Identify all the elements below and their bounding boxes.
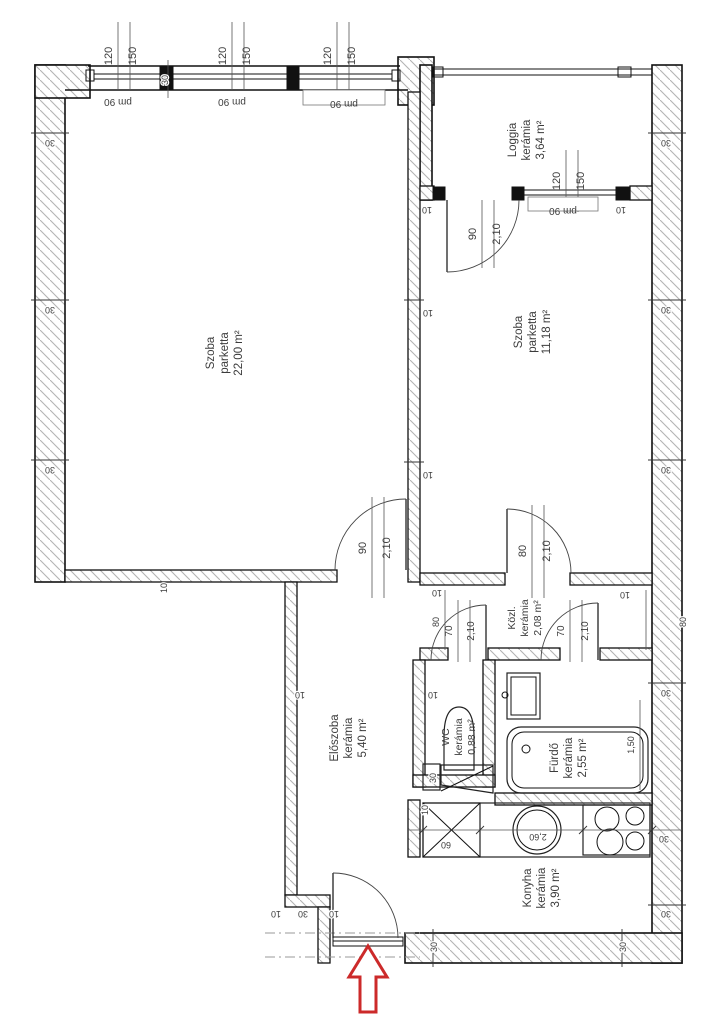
wc-door-width: 70 [444, 625, 455, 637]
window1-width: 120 [103, 47, 115, 65]
room-name: Közl. [506, 606, 518, 629]
loggia-window-parapet: pm 90 [549, 205, 577, 216]
room-material: kerámia [519, 599, 531, 637]
room-label-kozl: Közl. kerámia 2,08 m² [506, 599, 544, 637]
unit-width-label: 60 [441, 840, 451, 850]
window1-height: 150 [127, 47, 139, 65]
wall-label-10: 10 [432, 588, 442, 598]
wall-label-10: 10 [616, 205, 626, 215]
room-label-wc: WC kerámia 0,88 m² [440, 718, 478, 756]
szoba-small-door-height: 2,10 [541, 540, 553, 561]
furdo-door-height: 2,10 [580, 621, 591, 641]
room-name: Loggia [507, 122, 519, 157]
counter-length-label: 2,60 [529, 832, 547, 842]
wall-label-10: 10 [159, 583, 169, 593]
loggia-window-height: 150 [575, 172, 587, 190]
room-material: kerámia [536, 867, 548, 909]
entrance-arrow [349, 946, 387, 1012]
room-name: Fürdő [549, 743, 561, 773]
loggia-door-height: 2,10 [491, 223, 503, 244]
window3-parapet: pm 90 [330, 98, 358, 109]
room-name: WC [440, 728, 452, 746]
wall-label-10: 10 [422, 205, 432, 215]
entrance-arrow-shape [349, 946, 387, 1012]
top-window-band [65, 66, 408, 90]
wall-label-10: 10 [420, 805, 430, 815]
room-name: Szoba [513, 315, 525, 348]
wall-label-10: 10 [620, 590, 630, 600]
room-area: 2,55 m² [577, 738, 589, 777]
room-material: kerámia [563, 737, 575, 779]
room-name: Előszoba [329, 714, 341, 762]
room-material: kerámia [521, 119, 533, 161]
wall-label-30: 30 [661, 688, 671, 698]
window1-parapet: pm 90 [104, 96, 132, 107]
interior-walls [65, 92, 652, 963]
wall-label-30: 30 [45, 465, 55, 475]
wall-label-10: 10 [423, 470, 433, 480]
window2-parapet: pm 90 [218, 96, 246, 107]
room-material: parketta [219, 332, 231, 374]
wall-label-30: 30 [45, 305, 55, 315]
room-area: 3,64 m² [535, 120, 547, 159]
floor-plan-canvas: 120 150 120 150 120 150 pm 90 pm 90 pm 9… [0, 0, 720, 1024]
wall-label-30: 30 [661, 138, 671, 148]
wall-label-10: 10 [295, 690, 305, 700]
door-szoba-small [507, 509, 571, 573]
window2-width: 120 [217, 47, 229, 65]
loggia-railing [433, 67, 652, 77]
dim-label-80: 80 [431, 617, 441, 627]
dimension-lines [31, 22, 686, 967]
mullion-label-30: 30 [160, 75, 170, 85]
bottom-wall-label-30: 30 [618, 942, 628, 952]
bottom-wall-label-30: 30 [429, 942, 439, 952]
room-label-szoba-small: Szoba parketta 11,18 m² [513, 310, 553, 355]
room-label-eloszoba: Előszoba kerámia 5,40 m² [329, 714, 369, 762]
room-label-szoba-large: Szoba parketta 22,00 m² [205, 330, 245, 376]
wall-label-30: 30 [659, 834, 669, 844]
room-name: Szoba [205, 336, 217, 369]
wall-label-10: 10 [271, 909, 281, 919]
wall-label-10: 10 [428, 690, 438, 700]
wall-label-30: 30 [661, 305, 671, 315]
room-area: 3,90 m² [550, 868, 562, 907]
bigroom-door-height: 2,10 [381, 537, 393, 558]
window2-height: 150 [241, 47, 253, 65]
tub-length-label: 1,50 [626, 736, 636, 754]
room-area: 22,00 m² [233, 330, 245, 376]
room-material: parketta [527, 311, 539, 353]
washbasin [507, 673, 540, 719]
room-material: kerámia [453, 718, 465, 756]
bathroom-fixtures [502, 673, 648, 793]
wall-label-30: 30 [45, 138, 55, 148]
outer-walls [35, 57, 682, 963]
furdo-door-width: 70 [556, 625, 567, 637]
room-area: 2,08 m² [532, 600, 544, 636]
room-area: 0,88 m² [466, 719, 478, 755]
wc-cabinet-label-30: 30 [428, 773, 438, 783]
wall-label-30: 30 [661, 909, 671, 919]
floor-plan: 120 150 120 150 120 150 pm 90 pm 90 pm 9… [0, 0, 720, 1024]
loggia-door-width: 90 [467, 228, 479, 240]
window-mullion [287, 66, 299, 90]
loggia-window-width: 120 [551, 172, 563, 190]
room-label-konyha: Konyha kerámia 3,90 m² [522, 867, 562, 909]
bigroom-door-width: 90 [357, 542, 369, 554]
door-bigroom [335, 499, 406, 570]
room-label-loggia: Loggia kerámia 3,64 m² [507, 119, 547, 161]
room-label-furdo: Fürdő kerámia 2,55 m² [549, 737, 589, 779]
wall-label-10: 10 [329, 909, 339, 919]
window3-width: 120 [322, 47, 334, 65]
room-area: 11,18 m² [541, 310, 553, 355]
door-loggia [447, 200, 519, 272]
room-material: kerámia [343, 717, 355, 759]
szoba-small-door-width: 80 [517, 545, 529, 557]
room-name: Konyha [522, 868, 534, 908]
window3-height: 150 [346, 47, 358, 65]
wall-label-10: 10 [423, 308, 433, 318]
wall-label-30: 30 [661, 465, 671, 475]
wc-door-height: 2,10 [466, 621, 477, 641]
entry-stub-label-30: 30 [298, 909, 308, 919]
dim-label-80: 80 [678, 617, 688, 627]
room-area: 5,40 m² [357, 718, 369, 757]
